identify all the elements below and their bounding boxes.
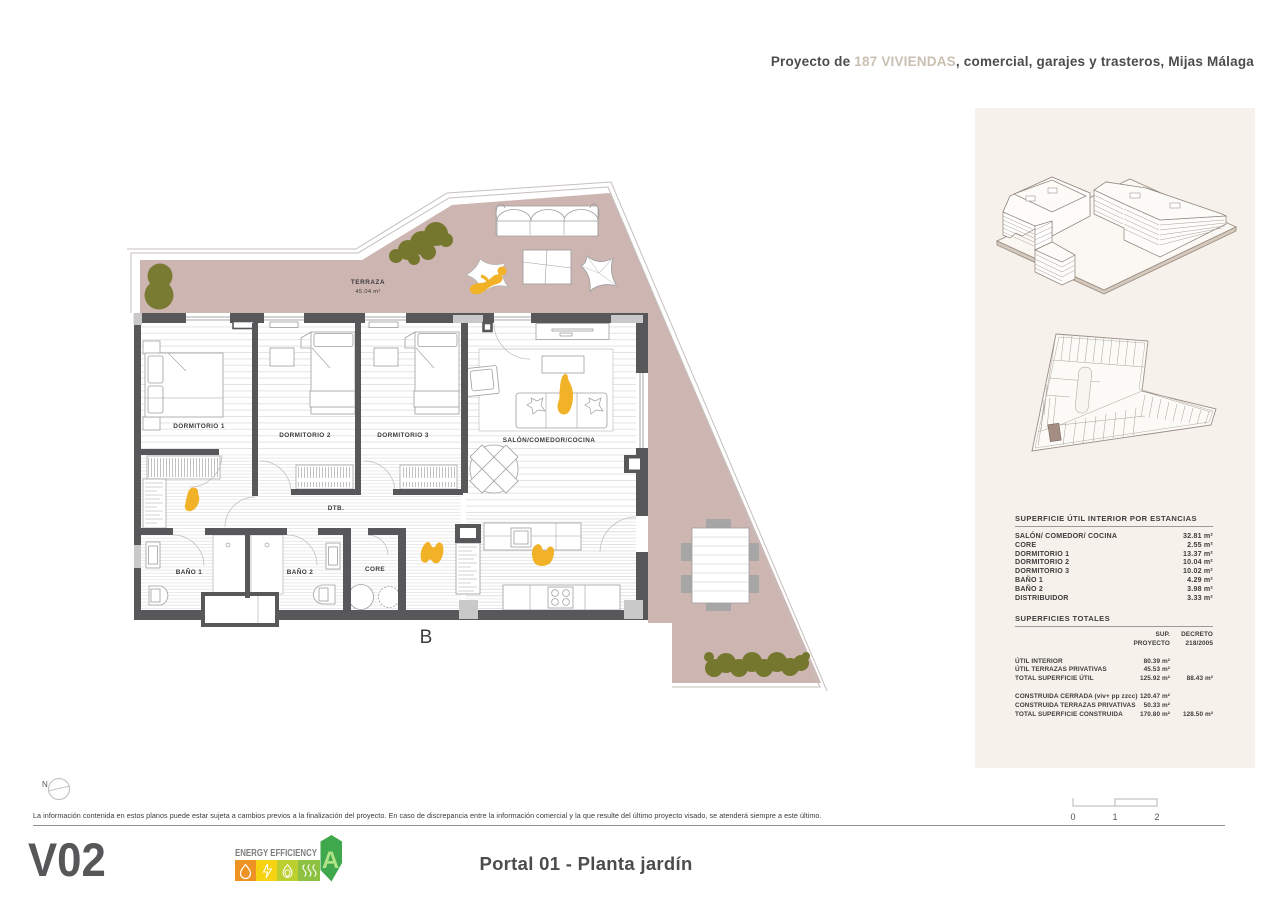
svg-text:DTB.: DTB. xyxy=(328,505,345,512)
svg-text:CORE: CORE xyxy=(365,566,385,573)
svg-text:BAÑO 1: BAÑO 1 xyxy=(176,567,203,576)
svg-text:TERRAZA: TERRAZA xyxy=(351,279,385,286)
svg-text:SALÓN/COMEDOR/COCINA: SALÓN/COMEDOR/COCINA xyxy=(503,435,596,444)
svg-text:2: 2 xyxy=(1154,812,1159,822)
svg-text:DORMITORIO 1: DORMITORIO 1 xyxy=(173,423,225,430)
svg-text:DORMITORIO 3: DORMITORIO 3 xyxy=(377,432,429,439)
svg-text:45.04 m²: 45.04 m² xyxy=(355,289,380,295)
svg-text:0: 0 xyxy=(1070,812,1075,822)
svg-text:BAÑO 2: BAÑO 2 xyxy=(287,567,314,576)
svg-text:N: N xyxy=(42,780,48,789)
svg-text:B: B xyxy=(420,627,433,648)
svg-text:DORMITORIO 2: DORMITORIO 2 xyxy=(279,432,331,439)
svg-text:1: 1 xyxy=(1112,812,1117,822)
